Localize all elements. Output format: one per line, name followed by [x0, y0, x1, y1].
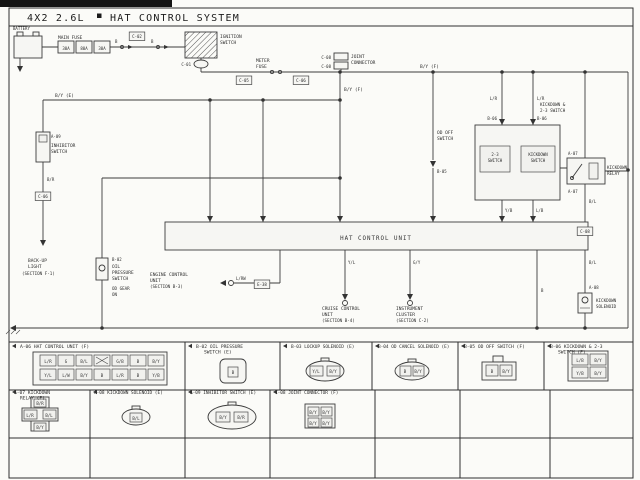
hat-control-unit-label: HAT CONTROL UNIT	[340, 236, 412, 242]
connector-code: B-06	[487, 116, 497, 121]
junction-dot	[531, 70, 535, 74]
wire-label: Y/B	[505, 208, 513, 213]
wire-label: Y/L	[348, 260, 356, 265]
connector-b06	[568, 351, 608, 381]
pin-label: B/L	[132, 416, 140, 421]
wire-label: B/L	[589, 199, 597, 204]
connector-code: C-01	[181, 62, 191, 67]
connector-code: C-05	[239, 78, 249, 83]
switch-label: KICKDOWN	[528, 152, 548, 157]
wire-label: G/Y	[413, 260, 421, 265]
wire-label: L/R	[537, 96, 545, 101]
connector-a06	[33, 352, 167, 385]
oil-pressure-switch-note: OD GEAR	[112, 286, 130, 291]
diagram-canvas: 4X2 2.6L HAT CONTROL SYSTEM	[0, 0, 640, 480]
junction-dot	[261, 98, 265, 102]
connector-code: A-07	[568, 189, 578, 194]
connector-code: A-08	[589, 285, 599, 290]
kickdown-solenoid	[578, 293, 592, 313]
scan-black-strip	[0, 0, 172, 7]
grid-header: B-05 OD OFF SWITCH (F)	[464, 344, 525, 350]
wire-label: L/R	[490, 96, 498, 101]
ignition-switch-label: SWITCH	[220, 40, 237, 46]
junction-dot	[338, 98, 342, 102]
pin-label: B/Y	[80, 373, 88, 378]
grid-header: A-07 KICKDOWN	[14, 390, 50, 396]
pin-label: B/R	[237, 415, 245, 420]
grid-header: A-08 KICKDOWN SOLENOID (E)	[94, 390, 163, 396]
backup-light-ref: LIGHT	[28, 264, 42, 270]
pin-label: B/Y	[152, 359, 160, 364]
grid-header: A-06 HAT CONTROL UNIT (F)	[20, 344, 89, 350]
title-model: 4X2 2.6L	[27, 13, 85, 24]
grid-header: B-02 OIL PRESSURE	[196, 344, 243, 350]
junction-dot	[100, 326, 104, 330]
oil-pressure-switch	[96, 258, 108, 280]
pin-label: B/Y	[329, 369, 337, 374]
pin-label: L/R	[26, 413, 34, 418]
grid-header: B-04 OD CANCEL SOLENOID (E)	[378, 344, 449, 350]
oil-pressure-switch-note: ON	[112, 292, 118, 297]
title-system: HAT CONTROL SYSTEM	[110, 13, 240, 24]
joint-connector-label: CONNECTOR	[351, 60, 376, 66]
engine-control-ref: (SECTION B-3)	[150, 284, 183, 289]
pin-label: B/Y	[219, 415, 227, 420]
junction-dot	[535, 326, 539, 330]
connector-code: C-08	[321, 64, 331, 69]
ignition-switch-label: IGNITION	[220, 34, 242, 40]
cruise-control-ref: (SECTION B-4)	[322, 318, 355, 323]
title-bullet-icon	[97, 14, 102, 19]
pin-label: Y/B	[152, 373, 160, 378]
pin-label: B/Y	[309, 410, 317, 415]
connector-code: C-08	[321, 55, 331, 60]
kickdown-relay	[567, 158, 605, 184]
pin-label: G/B	[116, 359, 124, 364]
connector-code: C-06	[38, 194, 48, 199]
junction-dot	[208, 98, 212, 102]
fuse-value: 30A	[98, 46, 106, 51]
kickdown-solenoid-label: KICKDOWN	[596, 298, 617, 303]
wire-label: L/B	[536, 208, 544, 213]
engine-control-ref: ENGINE CONTROL	[150, 272, 188, 278]
junction-dot	[431, 70, 435, 74]
pin-label: B/Y	[414, 369, 422, 374]
connector-code: B-06	[537, 116, 547, 121]
grid-header: B-06 KICKDOWN & 2-3	[550, 344, 603, 350]
instrument-cluster-ref: (SECTION C-2)	[396, 318, 429, 323]
pin-label: B/L	[45, 413, 53, 418]
battery-label: BATTERY	[13, 26, 30, 31]
oil-pressure-switch-label: OIL	[112, 264, 120, 270]
inhibitor-switch-label: INHIBITOR	[51, 143, 76, 149]
junction-dot	[500, 70, 504, 74]
pin-label: L/R	[116, 373, 124, 378]
connector-code: B-02	[112, 257, 122, 262]
switch-box-title: 2-3 SWITCH	[540, 108, 566, 113]
switch-label: 2-3	[491, 152, 499, 157]
pin-label: B/Y	[502, 369, 510, 374]
connector-code: A-07	[568, 151, 578, 156]
pin-label: L/R	[44, 359, 52, 364]
connector-code: C-02	[132, 34, 142, 39]
od-off-switch-label: SWITCH	[437, 136, 454, 142]
backup-light-ref: (SECTION F-1)	[22, 271, 55, 276]
connector-code: C-08	[580, 229, 590, 234]
oil-pressure-switch-label: SWITCH	[112, 276, 129, 282]
grid-header: C-08 JOINT CONNECTOR (F)	[275, 390, 338, 396]
inhibitor-switch-label: SWITCH	[51, 149, 68, 155]
switch-label: SWITCH	[488, 158, 503, 163]
hat-control-unit: HAT CONTROL UNIT	[165, 222, 588, 250]
wire-label: B/Y (F)	[420, 64, 439, 70]
kickdown-solenoid-label: SOLENOID	[596, 304, 617, 309]
pin-label: B/Y	[322, 410, 330, 415]
kickdown-relay-label: RELAY	[607, 171, 620, 176]
od-off-switch-label: OD OFF	[437, 130, 454, 136]
pin-label: L/B	[576, 358, 584, 363]
wire-label: B/L	[589, 260, 597, 265]
pin-label: B/Y	[594, 371, 602, 376]
junction-dot	[338, 176, 342, 180]
connector-code: C-06	[296, 78, 306, 83]
wire-label: B/R	[47, 177, 55, 182]
wire-label: B/Y (E)	[55, 93, 74, 99]
cruise-control-ref: CRUISE CONTROL	[322, 306, 360, 312]
fuse-value: 30A	[62, 46, 70, 51]
scanned-wiring-diagram-page: 4X2 2.6L HAT CONTROL SYSTEM	[0, 0, 640, 480]
connector-code: A-09	[51, 134, 61, 139]
joint-connector-label: JOINT	[351, 54, 365, 60]
switch-label: SWITCH	[531, 158, 546, 163]
grid-header: SWITCH (F)	[558, 350, 586, 356]
pin-label: Y/B	[576, 371, 584, 376]
wire-label: L/RW	[236, 276, 246, 281]
inhibitor-switch	[36, 132, 50, 162]
junction-dot	[338, 70, 342, 74]
connector-code: B-05	[437, 169, 447, 174]
wire-label: B/Y (F)	[344, 87, 363, 93]
meter-fuse-label: FUSE	[256, 64, 267, 70]
pin-label: B/Y	[309, 421, 317, 426]
grid-header: A-09 INHIBITOR SWITCH (E)	[190, 390, 256, 396]
backup-light-ref: BACK-UP	[28, 258, 47, 264]
meter-fuse-label: METER	[256, 58, 270, 64]
grid-header: SWITCH (E)	[204, 350, 232, 356]
fuse-value: 80A	[80, 46, 88, 51]
junction-dot	[583, 326, 587, 330]
pin-label: B/R	[36, 401, 44, 406]
instrument-cluster-ref: INSTRUMENT	[396, 306, 423, 312]
pin-label: Y/L	[312, 369, 320, 374]
battery	[14, 32, 42, 58]
switch-box-title: KICKDOWN &	[540, 102, 566, 107]
junction-dot	[626, 168, 630, 172]
junction-dot	[583, 70, 587, 74]
pin-label: L/W	[62, 373, 70, 378]
oil-pressure-switch-label: PRESSURE	[112, 270, 134, 276]
pin-label: B/L	[80, 359, 88, 364]
connector-code: E-38	[257, 282, 267, 287]
pin-label: B/Y	[36, 425, 44, 430]
pin-label: B/Y	[594, 358, 602, 363]
grid-header: B-03 LOCKUP SOLENOID (E)	[291, 344, 354, 350]
main-fuse-label: MAIN FUSE	[58, 35, 83, 41]
pin-label: Y/L	[44, 373, 52, 378]
kickdown-relay-label: KICKDOWN	[607, 165, 628, 170]
pin-label: B/Y	[322, 421, 330, 426]
